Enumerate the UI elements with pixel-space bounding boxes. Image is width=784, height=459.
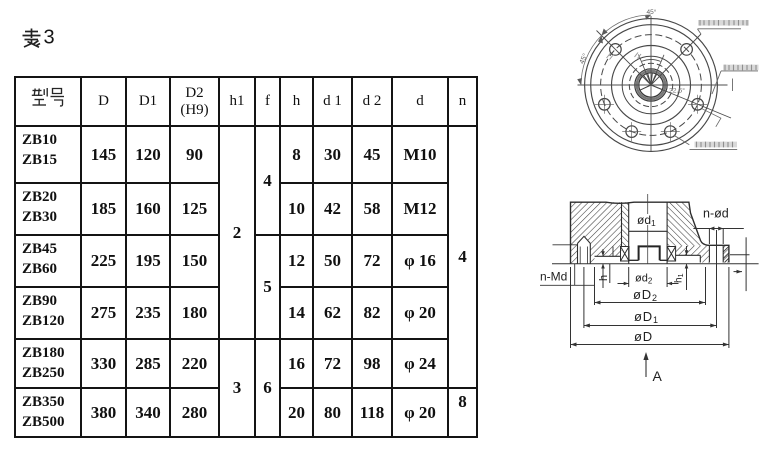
svg-text:øD2: øD2	[633, 287, 658, 303]
svg-text:n-Md: n-Md	[540, 270, 567, 284]
svg-text:22.5°: 22.5°	[669, 87, 685, 95]
svg-text:øD: øD	[634, 329, 653, 344]
svg-text:3: 3	[44, 27, 55, 49]
svg-text:n-ød: n-ød	[703, 207, 729, 221]
svg-text:øD1: øD1	[634, 309, 659, 325]
svg-text:A: A	[653, 368, 663, 384]
svg-text:45°: 45°	[647, 8, 657, 16]
svg-text:ød2: ød2	[635, 273, 653, 286]
svg-text:ød1: ød1	[637, 213, 656, 228]
svg-text:h: h	[598, 275, 610, 281]
svg-text:h1: h1	[674, 273, 686, 283]
